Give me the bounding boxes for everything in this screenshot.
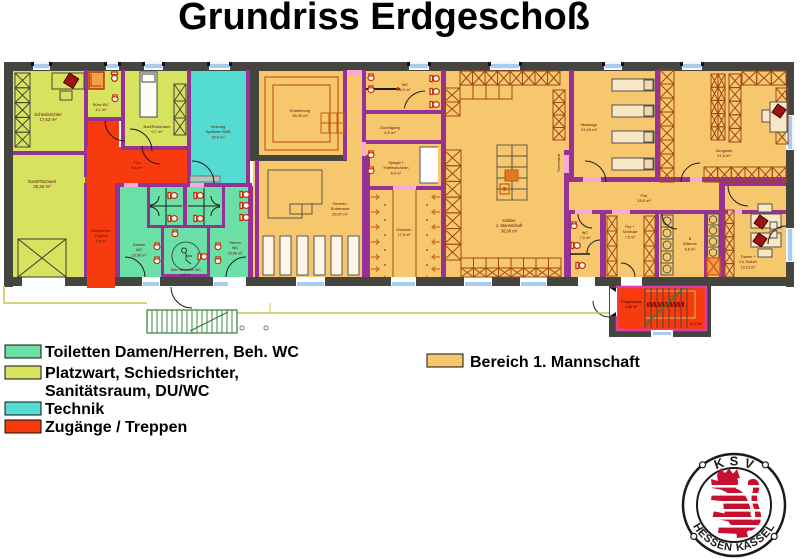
svg-text:19,15 m²: 19,15 m² bbox=[741, 265, 757, 269]
svg-text:6,9 m²: 6,9 m² bbox=[391, 171, 402, 175]
svg-text:WC: WC bbox=[582, 231, 589, 235]
svg-text:Herren: Herren bbox=[229, 241, 241, 245]
svg-text:Flur +: Flur + bbox=[625, 225, 634, 229]
svg-text:6,17 m²: 6,17 m² bbox=[690, 322, 702, 326]
svg-text:9,6 m²: 9,6 m² bbox=[131, 165, 143, 170]
svg-text:B: B bbox=[689, 237, 692, 241]
svg-text:15,06 m²: 15,06 m² bbox=[228, 251, 244, 255]
svg-text:Beh.+Besucher WC: Beh.+Besucher WC bbox=[171, 268, 201, 272]
svg-text:9,7 m²: 9,7 m² bbox=[151, 129, 163, 134]
svg-text:Technik: Technik bbox=[45, 401, 104, 418]
svg-text:21,00 m²: 21,00 m² bbox=[581, 127, 597, 132]
svg-text:Wäsche: Wäsche bbox=[683, 242, 697, 246]
svg-text:6,9 m²: 6,9 m² bbox=[384, 130, 396, 135]
svg-text:16,00 m²: 16,00 m² bbox=[292, 113, 308, 118]
svg-text:4,66 m²: 4,66 m² bbox=[625, 305, 638, 309]
svg-text:17,5 m²: 17,5 m² bbox=[398, 233, 412, 237]
svg-text:Platzwart, Schiedsrichter,: Platzwart, Schiedsrichter, bbox=[45, 365, 239, 382]
svg-text:Sanitätsraum, DU/WC: Sanitätsraum, DU/WC bbox=[45, 383, 210, 400]
svg-text:26,07 m²: 26,07 m² bbox=[332, 211, 348, 216]
svg-text:WC: WC bbox=[136, 248, 143, 252]
svg-text:Trennwand: Trennwand bbox=[557, 154, 561, 172]
svg-text:Bereich 1. Mannschaft: Bereich 1. Mannschaft bbox=[470, 354, 641, 371]
svg-text:Kraftmaschinen: Kraftmaschinen bbox=[384, 166, 409, 170]
svg-text:5,5 m²: 5,5 m² bbox=[96, 239, 107, 243]
svg-text:7,5 m²: 7,5 m² bbox=[625, 235, 636, 239]
svg-text:Überdachter: Überdachter bbox=[91, 229, 113, 233]
svg-text:Spiegel +: Spiegel + bbox=[388, 161, 403, 165]
svg-text:36,00 m²: 36,00 m² bbox=[501, 228, 518, 233]
svg-text:Treppenhaus: Treppenhaus bbox=[620, 300, 641, 304]
svg-text:Zugänge / Treppen: Zugänge / Treppen bbox=[45, 419, 187, 436]
svg-text:17,63 m²: 17,63 m² bbox=[39, 117, 57, 122]
svg-text:6,9 m²: 6,9 m² bbox=[400, 88, 411, 92]
svg-text:Co-Trainer: Co-Trainer bbox=[739, 260, 758, 264]
svg-text:Duschen: Duschen bbox=[397, 228, 412, 232]
svg-text:21,5 m²: 21,5 m² bbox=[717, 153, 731, 158]
svg-text:WC: WC bbox=[402, 83, 409, 87]
svg-text:Damen: Damen bbox=[133, 243, 145, 247]
svg-text:15,06 m²: 15,06 m² bbox=[132, 253, 148, 257]
svg-text:15,0 m²: 15,0 m² bbox=[211, 134, 225, 139]
svg-text:Zugang: Zugang bbox=[95, 234, 108, 238]
svg-text:Trainer +: Trainer + bbox=[740, 255, 756, 259]
svg-text:Schleuse: Schleuse bbox=[623, 230, 638, 234]
svg-text:4,1 m²: 4,1 m² bbox=[95, 107, 107, 112]
svg-text:4,9 m²: 4,9 m² bbox=[181, 273, 191, 277]
svg-text:26,26 m²: 26,26 m² bbox=[33, 184, 51, 189]
svg-text:WC: WC bbox=[232, 246, 239, 250]
svg-text:15,0 m²: 15,0 m² bbox=[637, 198, 651, 203]
svg-text:7,5 m²: 7,5 m² bbox=[580, 236, 591, 240]
svg-text:6,6 m²: 6,6 m² bbox=[685, 247, 696, 251]
svg-text:Toiletten Damen/Herren, Beh. W: Toiletten Damen/Herren, Beh. WC bbox=[45, 344, 299, 361]
